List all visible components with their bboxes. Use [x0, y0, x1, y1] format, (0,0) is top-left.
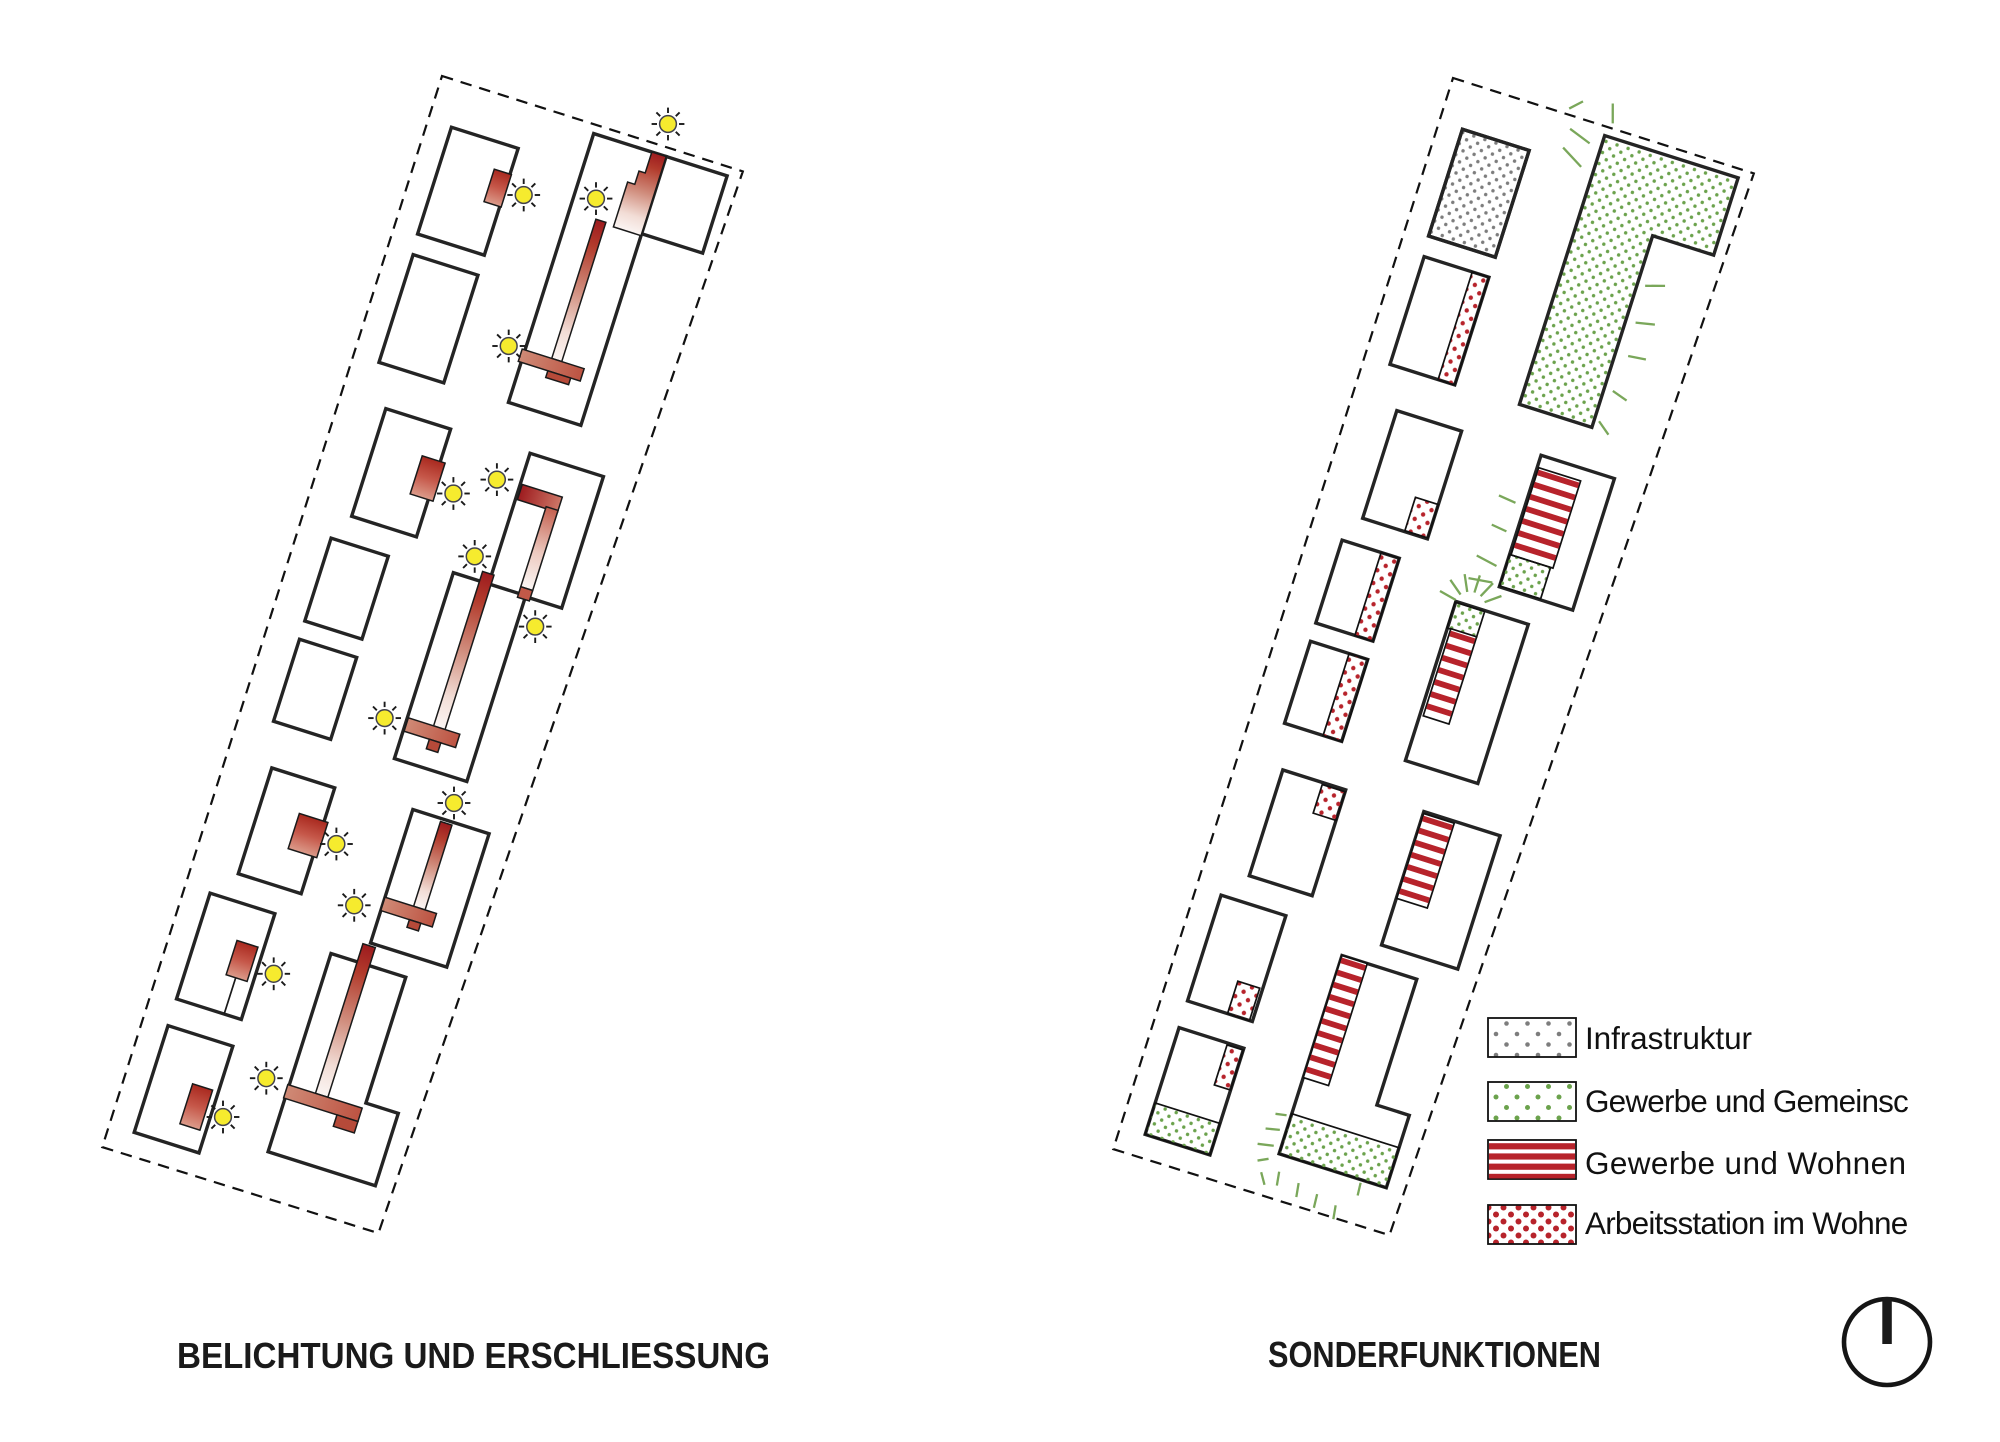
svg-text:Infrastruktur: Infrastruktur: [1585, 1020, 1752, 1056]
svg-text:BELICHTUNG UND ERSCHLIESSUNG: BELICHTUNG UND ERSCHLIESSUNG: [177, 1335, 770, 1376]
svg-text:Gewerbe und Gemeinschaft: Gewerbe und Gemeinschaft: [1585, 1083, 1958, 1119]
svg-text:Arbeitsstation im Wohnen: Arbeitsstation im Wohnen: [1585, 1205, 1925, 1241]
svg-text:Gewerbe und Wohnen: Gewerbe und Wohnen: [1585, 1145, 1906, 1181]
svg-text:SONDERFUNKTIONEN: SONDERFUNKTIONEN: [1268, 1334, 1601, 1375]
